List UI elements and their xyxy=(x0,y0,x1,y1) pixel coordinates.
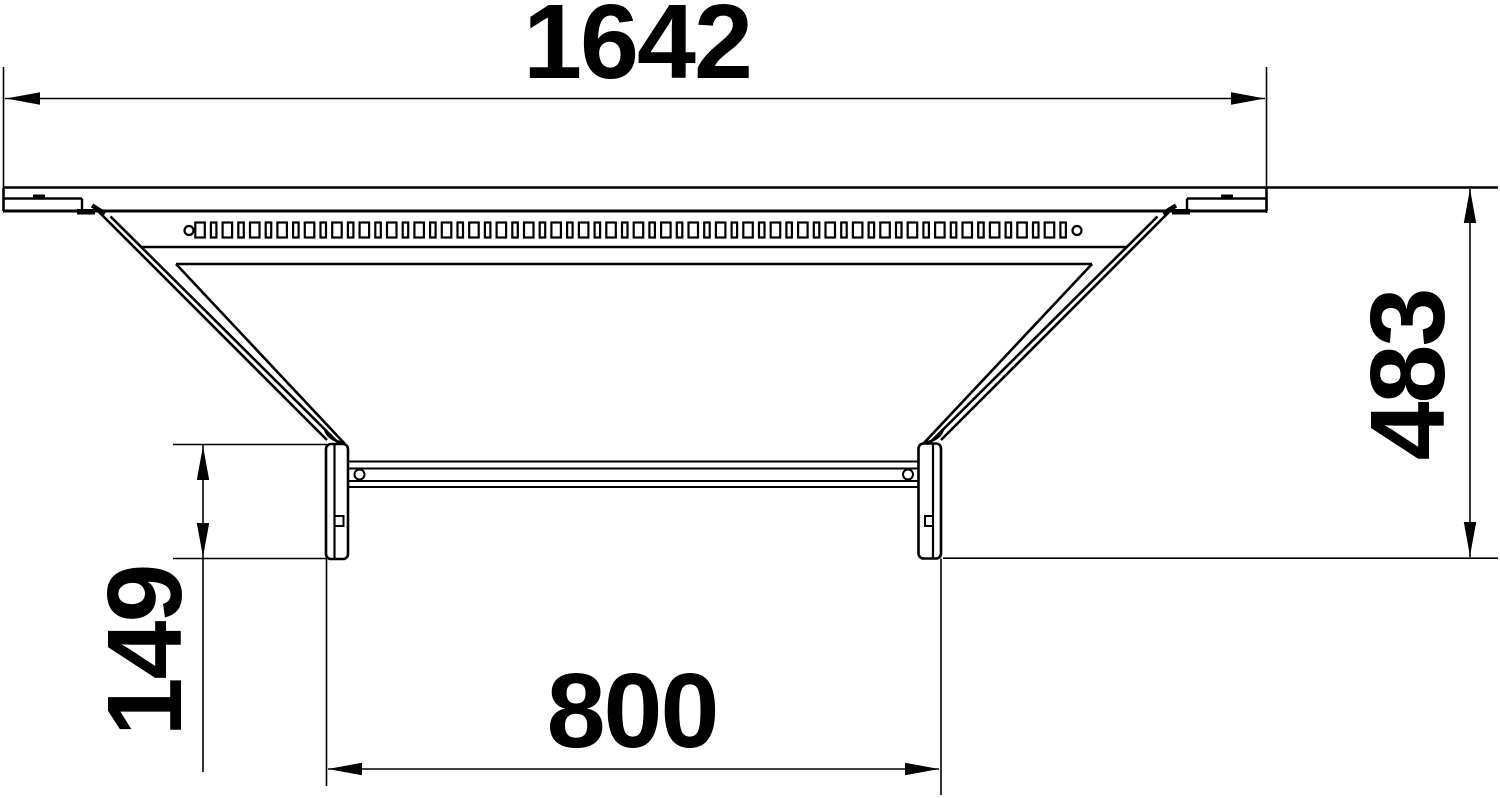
right-branch-end-cap xyxy=(919,444,942,559)
right-diagonal-inner xyxy=(929,217,1158,444)
rail-slot-hole xyxy=(704,223,710,238)
dim-overall-width: 1642 xyxy=(4,0,1267,213)
right-diagonal-outer xyxy=(941,211,1171,441)
rail-slot-hole xyxy=(238,223,244,238)
dim-800-value: 800 xyxy=(547,652,718,770)
rail-slot-hole xyxy=(403,223,409,238)
rail-slot-hole xyxy=(469,223,479,238)
rail-slot-hole xyxy=(430,223,436,238)
dim-800-arrow-left xyxy=(328,763,362,775)
left-branch-end-cap xyxy=(326,444,348,559)
rail-slot-hole xyxy=(880,223,890,238)
rail-slot-hole xyxy=(649,223,655,238)
rail-slot-hole xyxy=(332,223,342,238)
dim-149-arrow-bottom xyxy=(197,523,209,557)
rail-slot-hole xyxy=(689,223,699,238)
left-joint-mark xyxy=(77,209,95,215)
rail-slot-hole xyxy=(485,223,491,238)
rail-slot-hole xyxy=(512,223,518,238)
left-cap-clip xyxy=(335,516,344,526)
rail-slot-hole xyxy=(841,223,847,238)
rail-slot-hole xyxy=(908,223,918,238)
rail-slot-hole xyxy=(923,223,929,238)
rail-slot-hole xyxy=(732,223,738,238)
dim-483-value: 483 xyxy=(1349,290,1467,461)
dim-800-arrow-right xyxy=(905,763,939,775)
left-transition-edge xyxy=(92,206,345,445)
rail-slot-hole xyxy=(743,223,753,238)
rail-left-round-hole xyxy=(185,226,194,235)
rail-slot-hole xyxy=(223,223,233,238)
rail-slot-hole xyxy=(786,223,792,238)
rail-slot-hole xyxy=(1045,223,1055,238)
rail-slot-hole xyxy=(826,223,836,238)
rail-slot-hole xyxy=(951,223,957,238)
rail-slot-hole xyxy=(595,223,601,238)
rail-slot-hole xyxy=(606,223,616,238)
rail-slot-hole xyxy=(963,223,973,238)
rail-slot-hole xyxy=(622,223,628,238)
rail-slot-hole xyxy=(990,223,1000,238)
perforation-row xyxy=(185,223,1082,238)
left-diagonal-inner xyxy=(111,217,340,444)
rail-slot-hole xyxy=(759,223,765,238)
rail-slot-hole xyxy=(414,223,424,238)
rail-slot-hole xyxy=(375,223,381,238)
rail-right-round-hole xyxy=(1073,226,1082,235)
rail-slot-hole xyxy=(551,223,561,238)
rail-slot-hole xyxy=(853,223,863,238)
branch-rung xyxy=(348,462,919,488)
rail-slot-hole xyxy=(896,223,902,238)
rail-slot-hole xyxy=(1017,223,1027,238)
right-cap-body xyxy=(919,444,942,559)
right-diagonal-bend xyxy=(923,264,1092,444)
rail-slot-hole xyxy=(661,223,671,238)
dim-149-value: 149 xyxy=(86,566,204,737)
rail-slot-hole xyxy=(716,223,726,238)
left-tab-tick xyxy=(33,195,45,199)
dim-149-arrow-top xyxy=(197,446,209,480)
cover-plate xyxy=(3,188,1498,215)
rail-slot-hole xyxy=(869,223,875,238)
rail-slot-hole xyxy=(360,223,370,238)
rail-slot-hole xyxy=(250,223,260,238)
drawing-svg: 1642 483 149 800 xyxy=(0,0,1500,798)
technical-drawing-canvas: 1642 483 149 800 xyxy=(0,0,1500,798)
dim-branch-width: 800 xyxy=(327,559,942,796)
rail-slot-hole xyxy=(524,223,534,238)
rail-slot-hole xyxy=(458,223,464,238)
dim-483-arrow-top xyxy=(1464,189,1476,223)
rail-slot-hole xyxy=(195,223,205,238)
rail-slot-hole xyxy=(348,223,354,238)
rail-slot-hole xyxy=(293,223,299,238)
dim-overall-depth: 483 xyxy=(943,189,1498,558)
rail-slot-hole xyxy=(814,223,820,238)
left-diagonal-outer xyxy=(98,211,328,441)
dim-branch-end-height: 149 xyxy=(86,445,327,773)
rail-slot-hole xyxy=(677,223,683,238)
right-tab-tick xyxy=(1221,195,1233,199)
rail-slot-hole xyxy=(277,223,287,238)
rail-slot-hole xyxy=(442,223,452,238)
rail-slot-hole xyxy=(771,223,781,238)
rail-slot-hole xyxy=(634,223,644,238)
rail-slot-hole xyxy=(497,223,507,238)
rail-slot-hole xyxy=(1060,223,1066,238)
rail-slot-hole xyxy=(567,223,573,238)
rail-slot-hole xyxy=(266,223,272,238)
right-transition-edge xyxy=(923,206,1176,445)
perforated-side-rail xyxy=(141,223,1127,265)
rail-slot-hole xyxy=(321,223,327,238)
rail-slot-hole xyxy=(211,223,217,238)
dim-1642-arrow-right xyxy=(1231,92,1265,104)
dim-1642-value: 1642 xyxy=(523,0,751,101)
rung-left-hole xyxy=(355,470,365,480)
rail-slot-hole xyxy=(935,223,945,238)
left-diagonal-bend xyxy=(176,264,345,444)
rail-slot-hole xyxy=(387,223,397,238)
rail-slot-hole xyxy=(540,223,546,238)
rail-slot-hole xyxy=(579,223,589,238)
rail-slot-hole xyxy=(305,223,315,238)
rung-right-hole xyxy=(903,470,913,480)
rail-slot-hole xyxy=(1033,223,1039,238)
rail-slot-hole xyxy=(798,223,808,238)
left-cap-body xyxy=(326,444,348,559)
dim-483-arrow-bottom xyxy=(1464,522,1476,556)
rail-slot-hole xyxy=(1006,223,1012,238)
dim-1642-arrow-left xyxy=(6,92,40,104)
right-cap-clip xyxy=(925,516,933,526)
rail-slot-hole xyxy=(978,223,984,238)
right-joint-mark xyxy=(1172,209,1190,215)
